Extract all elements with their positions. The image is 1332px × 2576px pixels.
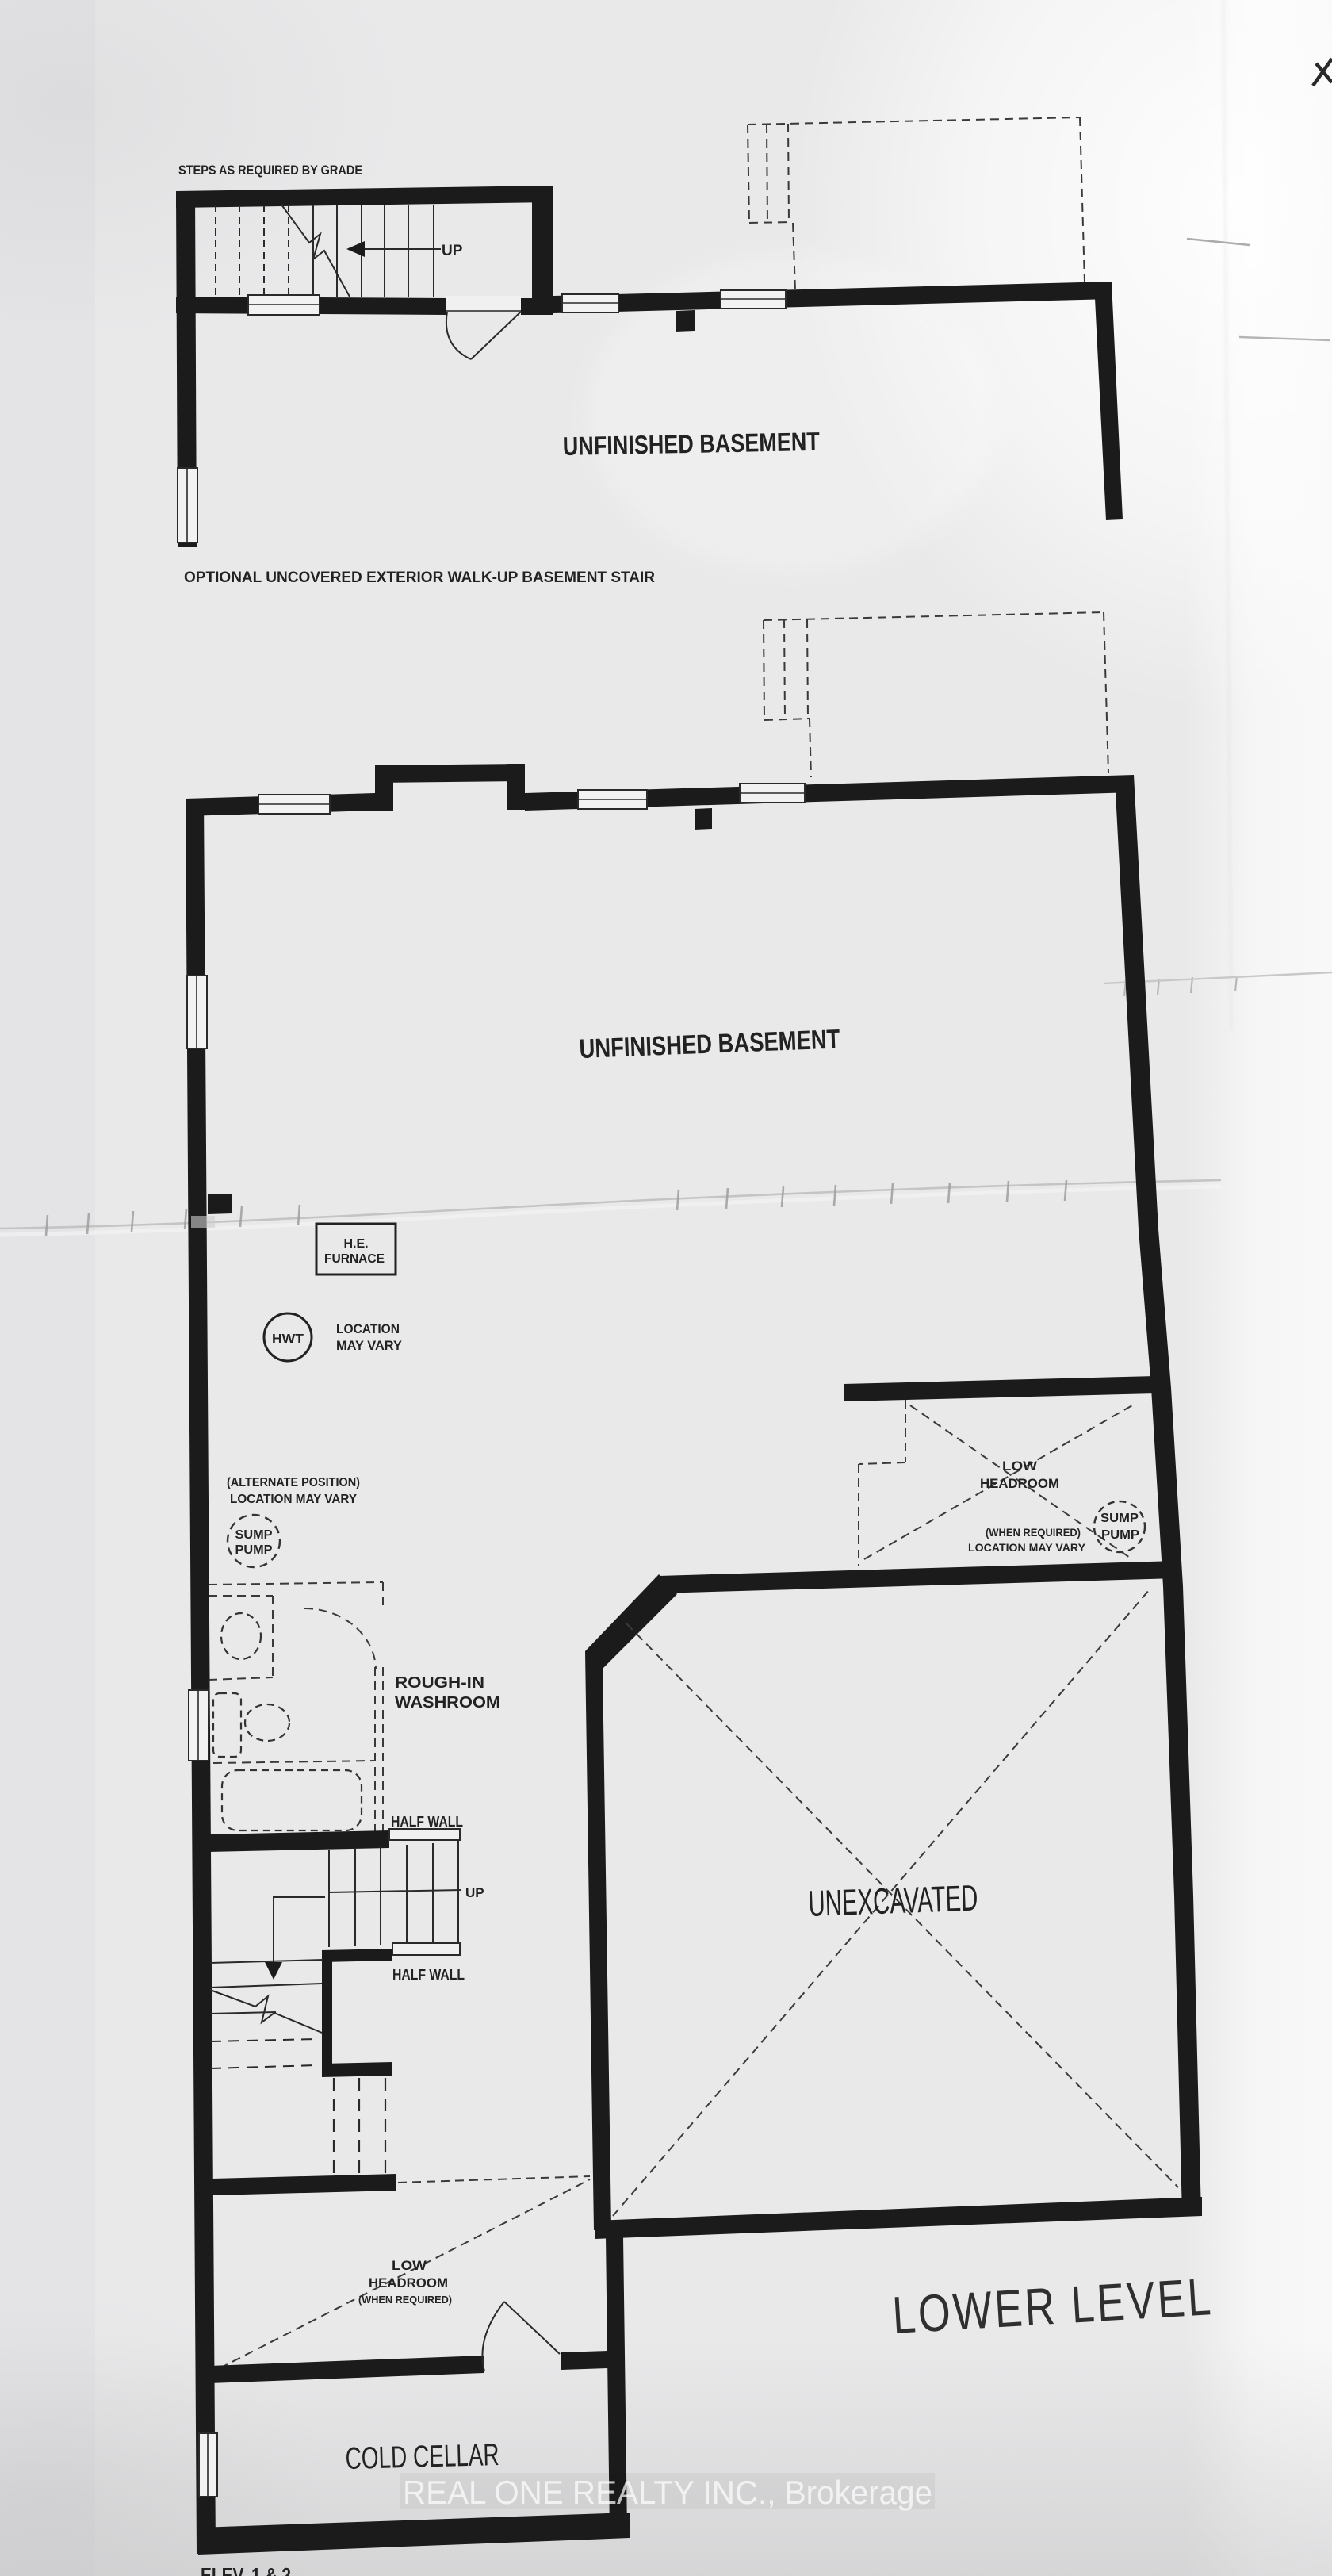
svg-text:MAY VARY: MAY VARY (336, 1338, 403, 1353)
svg-text:UP: UP (442, 243, 463, 259)
svg-text:SUMP: SUMP (235, 1528, 273, 1542)
svg-text:HALF WALL: HALF WALL (392, 1967, 465, 1983)
svg-text:(ALTERNATE POSITION): (ALTERNATE POSITION) (227, 1476, 360, 1489)
svg-text:HALF WALL: HALF WALL (391, 1814, 463, 1830)
svg-text:LOW: LOW (392, 2259, 427, 2273)
svg-text:OPTIONAL UNCOVERED EXTERIOR WA: OPTIONAL UNCOVERED EXTERIOR WALK-UP BASE… (184, 569, 655, 586)
svg-text:LOCATION: LOCATION (336, 1321, 400, 1336)
svg-text:PUMP: PUMP (235, 1543, 273, 1557)
svg-text:PUMP: PUMP (1101, 1528, 1139, 1542)
svg-text:(WHEN REQUIRED): (WHEN REQUIRED) (358, 2294, 452, 2306)
svg-text:ELEV. 1 & 2: ELEV. 1 & 2 (201, 2563, 291, 2576)
svg-text:UNFINISHED BASEMENT: UNFINISHED BASEMENT (562, 427, 820, 461)
svg-text:HWT: HWT (272, 1332, 304, 1346)
svg-text:STEPS AS REQUIRED BY GRADE: STEPS AS REQUIRED BY GRADE (178, 163, 362, 178)
svg-text:HEADROOM: HEADROOM (369, 2276, 448, 2290)
svg-text:WASHROOM: WASHROOM (395, 1694, 500, 1712)
svg-text:SUMP: SUMP (1100, 1512, 1139, 1525)
svg-text:COLD CELLAR: COLD CELLAR (345, 2438, 499, 2476)
svg-text:ROUGH-IN: ROUGH-IN (395, 1674, 484, 1692)
svg-text:(WHEN REQUIRED): (WHEN REQUIRED) (986, 1527, 1081, 1539)
svg-text:LOCATION MAY VARY: LOCATION MAY VARY (968, 1542, 1085, 1554)
svg-text:REAL ONE REALTY INC., Brokerag: REAL ONE REALTY INC., Brokerage (403, 2474, 932, 2511)
svg-text:HEADROOM: HEADROOM (980, 1477, 1059, 1491)
svg-text:H.E.: H.E. (343, 1237, 368, 1251)
svg-text:LOW: LOW (1002, 1459, 1037, 1474)
svg-text:LOCATION MAY VARY: LOCATION MAY VARY (230, 1493, 358, 1506)
svg-text:FURNACE: FURNACE (324, 1252, 385, 1266)
svg-text:UP: UP (465, 1885, 484, 1900)
svg-text:UNEXCAVATED: UNEXCAVATED (808, 1877, 979, 1924)
